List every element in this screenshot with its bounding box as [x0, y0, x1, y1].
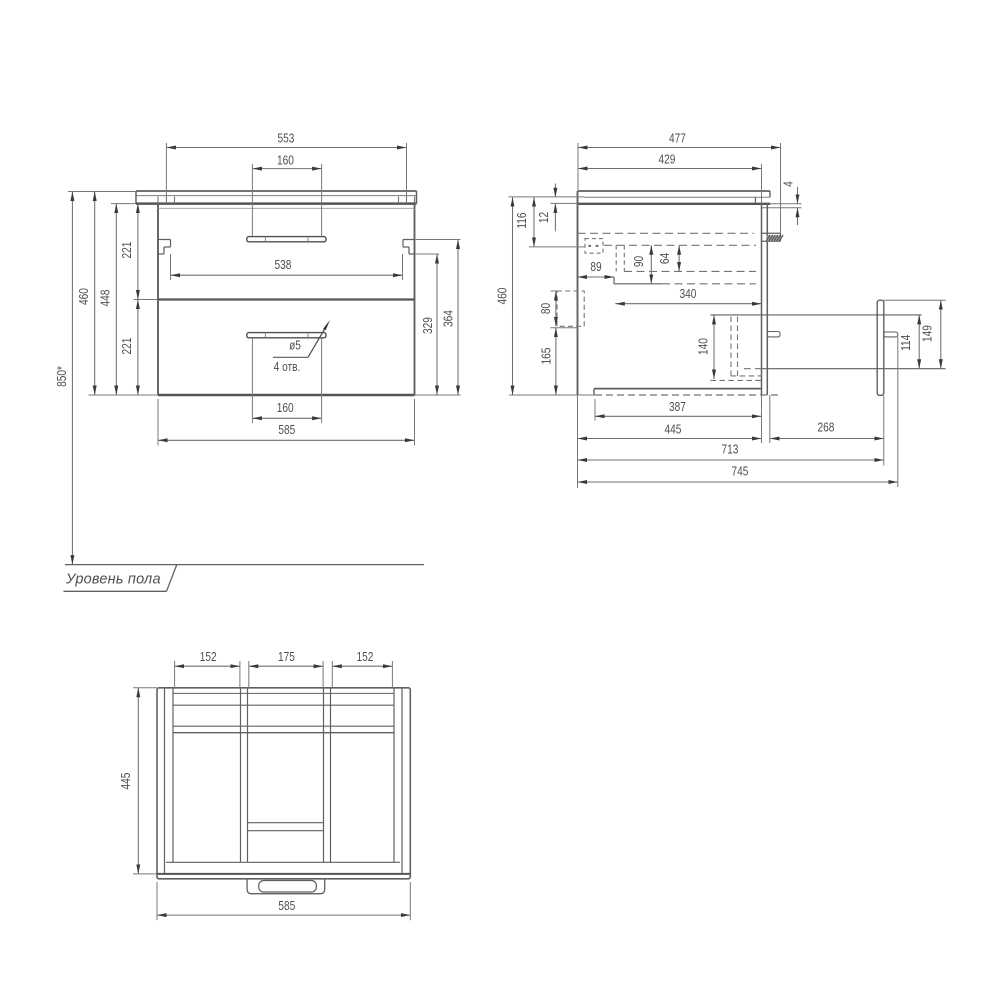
svg-text:268: 268 — [818, 421, 835, 435]
svg-text:165: 165 — [539, 348, 553, 365]
svg-text:585: 585 — [278, 423, 295, 437]
svg-text:4: 4 — [781, 181, 795, 187]
svg-text:745: 745 — [732, 464, 749, 478]
svg-text:445: 445 — [119, 773, 133, 790]
svg-text:160: 160 — [277, 401, 294, 415]
svg-text:477: 477 — [669, 131, 686, 145]
svg-text:429: 429 — [659, 152, 676, 166]
svg-text:160: 160 — [277, 153, 294, 167]
svg-text:149: 149 — [920, 325, 934, 342]
svg-text:221: 221 — [120, 242, 134, 259]
svg-text:445: 445 — [665, 422, 682, 436]
svg-text:713: 713 — [722, 442, 739, 456]
svg-text:850*: 850* — [55, 366, 69, 387]
svg-text:114: 114 — [899, 334, 913, 351]
svg-text:152: 152 — [200, 650, 217, 664]
svg-text:460: 460 — [77, 288, 91, 305]
svg-text:89: 89 — [590, 260, 601, 274]
svg-text:Уровень пола: Уровень пола — [65, 571, 161, 587]
svg-text:448: 448 — [98, 290, 112, 307]
svg-text:116: 116 — [515, 212, 529, 228]
svg-text:585: 585 — [278, 899, 295, 913]
svg-text:538: 538 — [275, 258, 292, 272]
svg-text:ø5: ø5 — [289, 338, 301, 352]
svg-text:90: 90 — [632, 255, 646, 267]
svg-text:175: 175 — [278, 650, 295, 664]
svg-text:12: 12 — [537, 212, 551, 223]
svg-text:221: 221 — [120, 338, 134, 355]
svg-text:387: 387 — [669, 400, 686, 414]
svg-text:152: 152 — [357, 650, 374, 664]
svg-text:329: 329 — [421, 317, 435, 334]
svg-text:140: 140 — [696, 338, 710, 355]
svg-text:4 отв.: 4 отв. — [274, 360, 301, 374]
svg-text:364: 364 — [441, 310, 455, 327]
svg-text:460: 460 — [495, 287, 509, 304]
svg-text:553: 553 — [278, 131, 295, 145]
svg-text:80: 80 — [539, 302, 553, 314]
svg-text:340: 340 — [680, 287, 697, 301]
svg-text:64: 64 — [658, 252, 672, 264]
